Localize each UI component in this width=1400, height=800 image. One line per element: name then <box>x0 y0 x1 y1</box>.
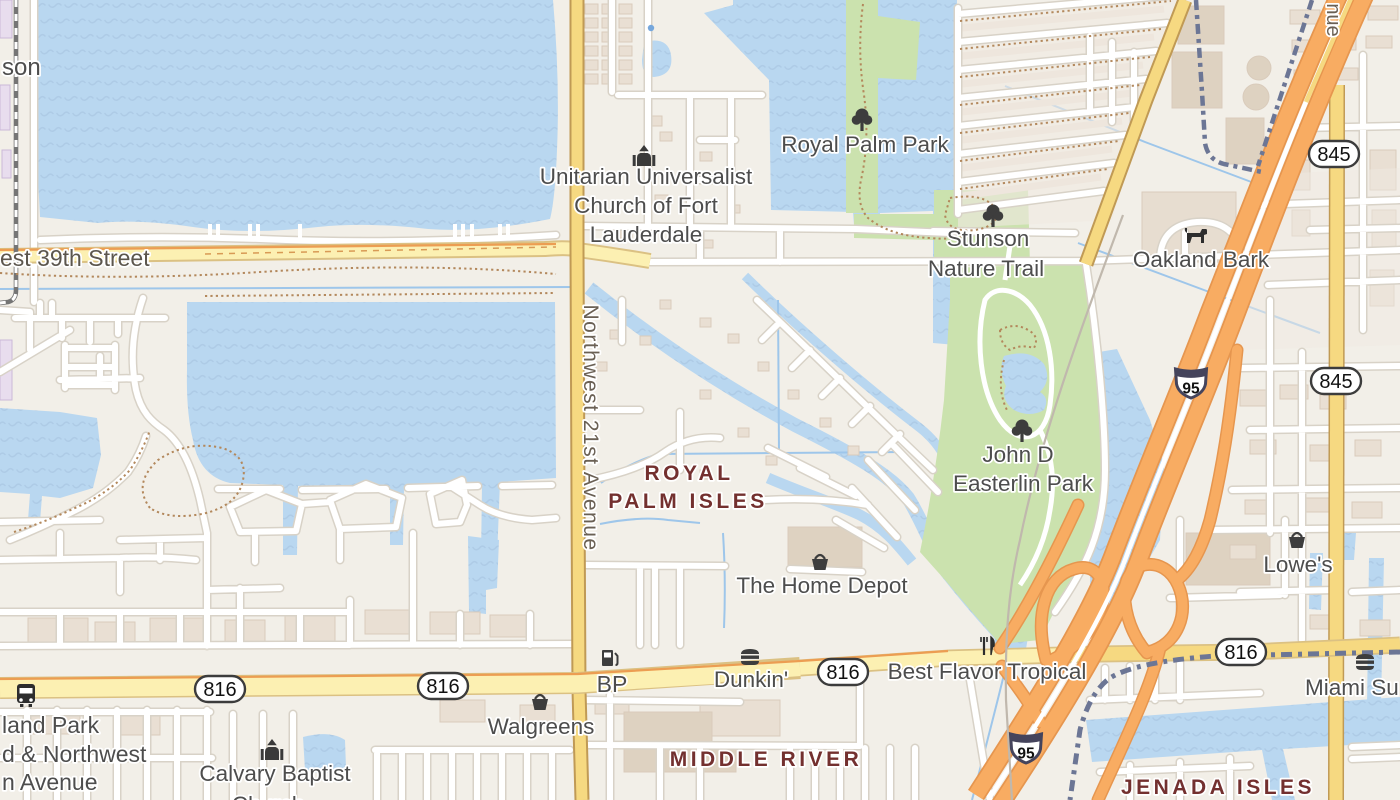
svg-text:MIDDLE RIVER: MIDDLE RIVER <box>670 748 863 771</box>
svg-text:BP: BP <box>597 671 628 697</box>
svg-text:816: 816 <box>1224 642 1257 664</box>
svg-text:816: 816 <box>426 676 459 698</box>
svg-text:son: son <box>2 54 41 81</box>
svg-text:Dunkin': Dunkin' <box>714 667 788 692</box>
svg-text:Lauderdale: Lauderdale <box>590 222 703 247</box>
svg-text:JENADA ISLES: JENADA ISLES <box>1121 776 1315 799</box>
svg-text:Unitarian Universalist: Unitarian Universalist <box>540 164 753 189</box>
svg-text:Miami Su: Miami Su <box>1305 675 1399 700</box>
svg-text:nue: nue <box>1322 3 1344 36</box>
svg-text:Walgreens: Walgreens <box>488 714 595 739</box>
svg-text:95: 95 <box>1182 381 1200 398</box>
svg-text:John D: John D <box>982 442 1053 467</box>
svg-text:816: 816 <box>203 679 236 701</box>
svg-text:Church: Church <box>232 792 305 800</box>
svg-text:845: 845 <box>1319 371 1352 393</box>
svg-text:816: 816 <box>826 662 859 684</box>
svg-text:Easterlin Park: Easterlin Park <box>953 471 1094 496</box>
svg-text:The Home Depot: The Home Depot <box>736 573 908 598</box>
svg-text:845: 845 <box>1317 144 1350 166</box>
svg-text:est 39th Street: est 39th Street <box>0 245 150 271</box>
svg-text:ROYAL: ROYAL <box>644 462 733 485</box>
svg-text:land Park: land Park <box>2 712 100 738</box>
svg-text:95: 95 <box>1017 746 1035 763</box>
svg-text:Oakland Bark: Oakland Bark <box>1133 247 1270 272</box>
svg-text:Best Flavor Tropical: Best Flavor Tropical <box>888 659 1087 684</box>
svg-text:Lowe's: Lowe's <box>1263 552 1332 577</box>
svg-text:Church of Fort: Church of Fort <box>574 193 719 218</box>
svg-text:n Avenue: n Avenue <box>2 769 98 795</box>
svg-text:Northwest 21st Avenue: Northwest 21st Avenue <box>579 304 602 551</box>
svg-text:PALM ISLES: PALM ISLES <box>608 490 767 513</box>
svg-text:d & Northwest: d & Northwest <box>2 741 147 767</box>
svg-text:Stunson: Stunson <box>947 226 1030 251</box>
svg-text:Royal Palm Park: Royal Palm Park <box>781 132 949 157</box>
svg-text:Nature Trail: Nature Trail <box>928 256 1044 281</box>
svg-text:Calvary Baptist: Calvary Baptist <box>199 761 351 786</box>
